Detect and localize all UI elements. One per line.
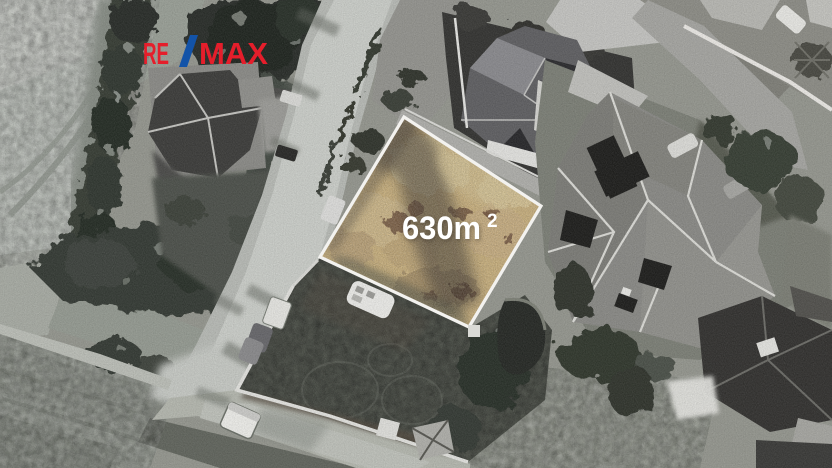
svg-text:2: 2 [487,211,498,232]
svg-text:RE: RE [143,36,169,71]
svg-text:MAX: MAX [199,36,268,71]
svg-text:630m: 630m [402,210,481,246]
